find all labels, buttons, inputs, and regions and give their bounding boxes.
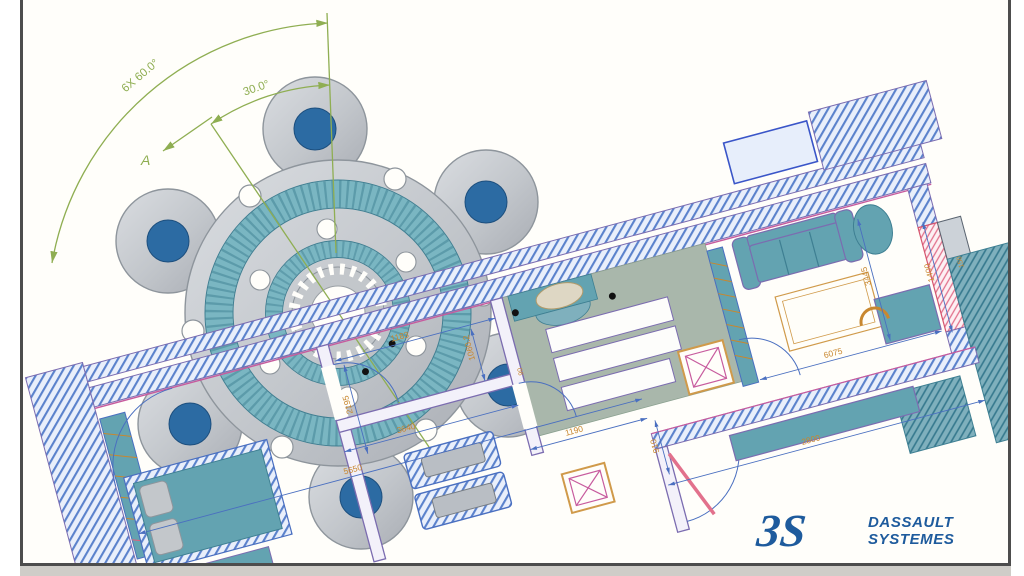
cad-drawing-canvas: 6X 60.0° 30.0° A: [0, 0, 1024, 576]
cad-drawing: 6X 60.0° 30.0° A: [0, 0, 1024, 576]
logo-line2: SYSTEMES: [868, 531, 955, 548]
logo-line1: DASSAULT: [868, 514, 955, 531]
section-view-label: A: [140, 152, 150, 168]
logo-mark: 3S: [754, 505, 809, 556]
